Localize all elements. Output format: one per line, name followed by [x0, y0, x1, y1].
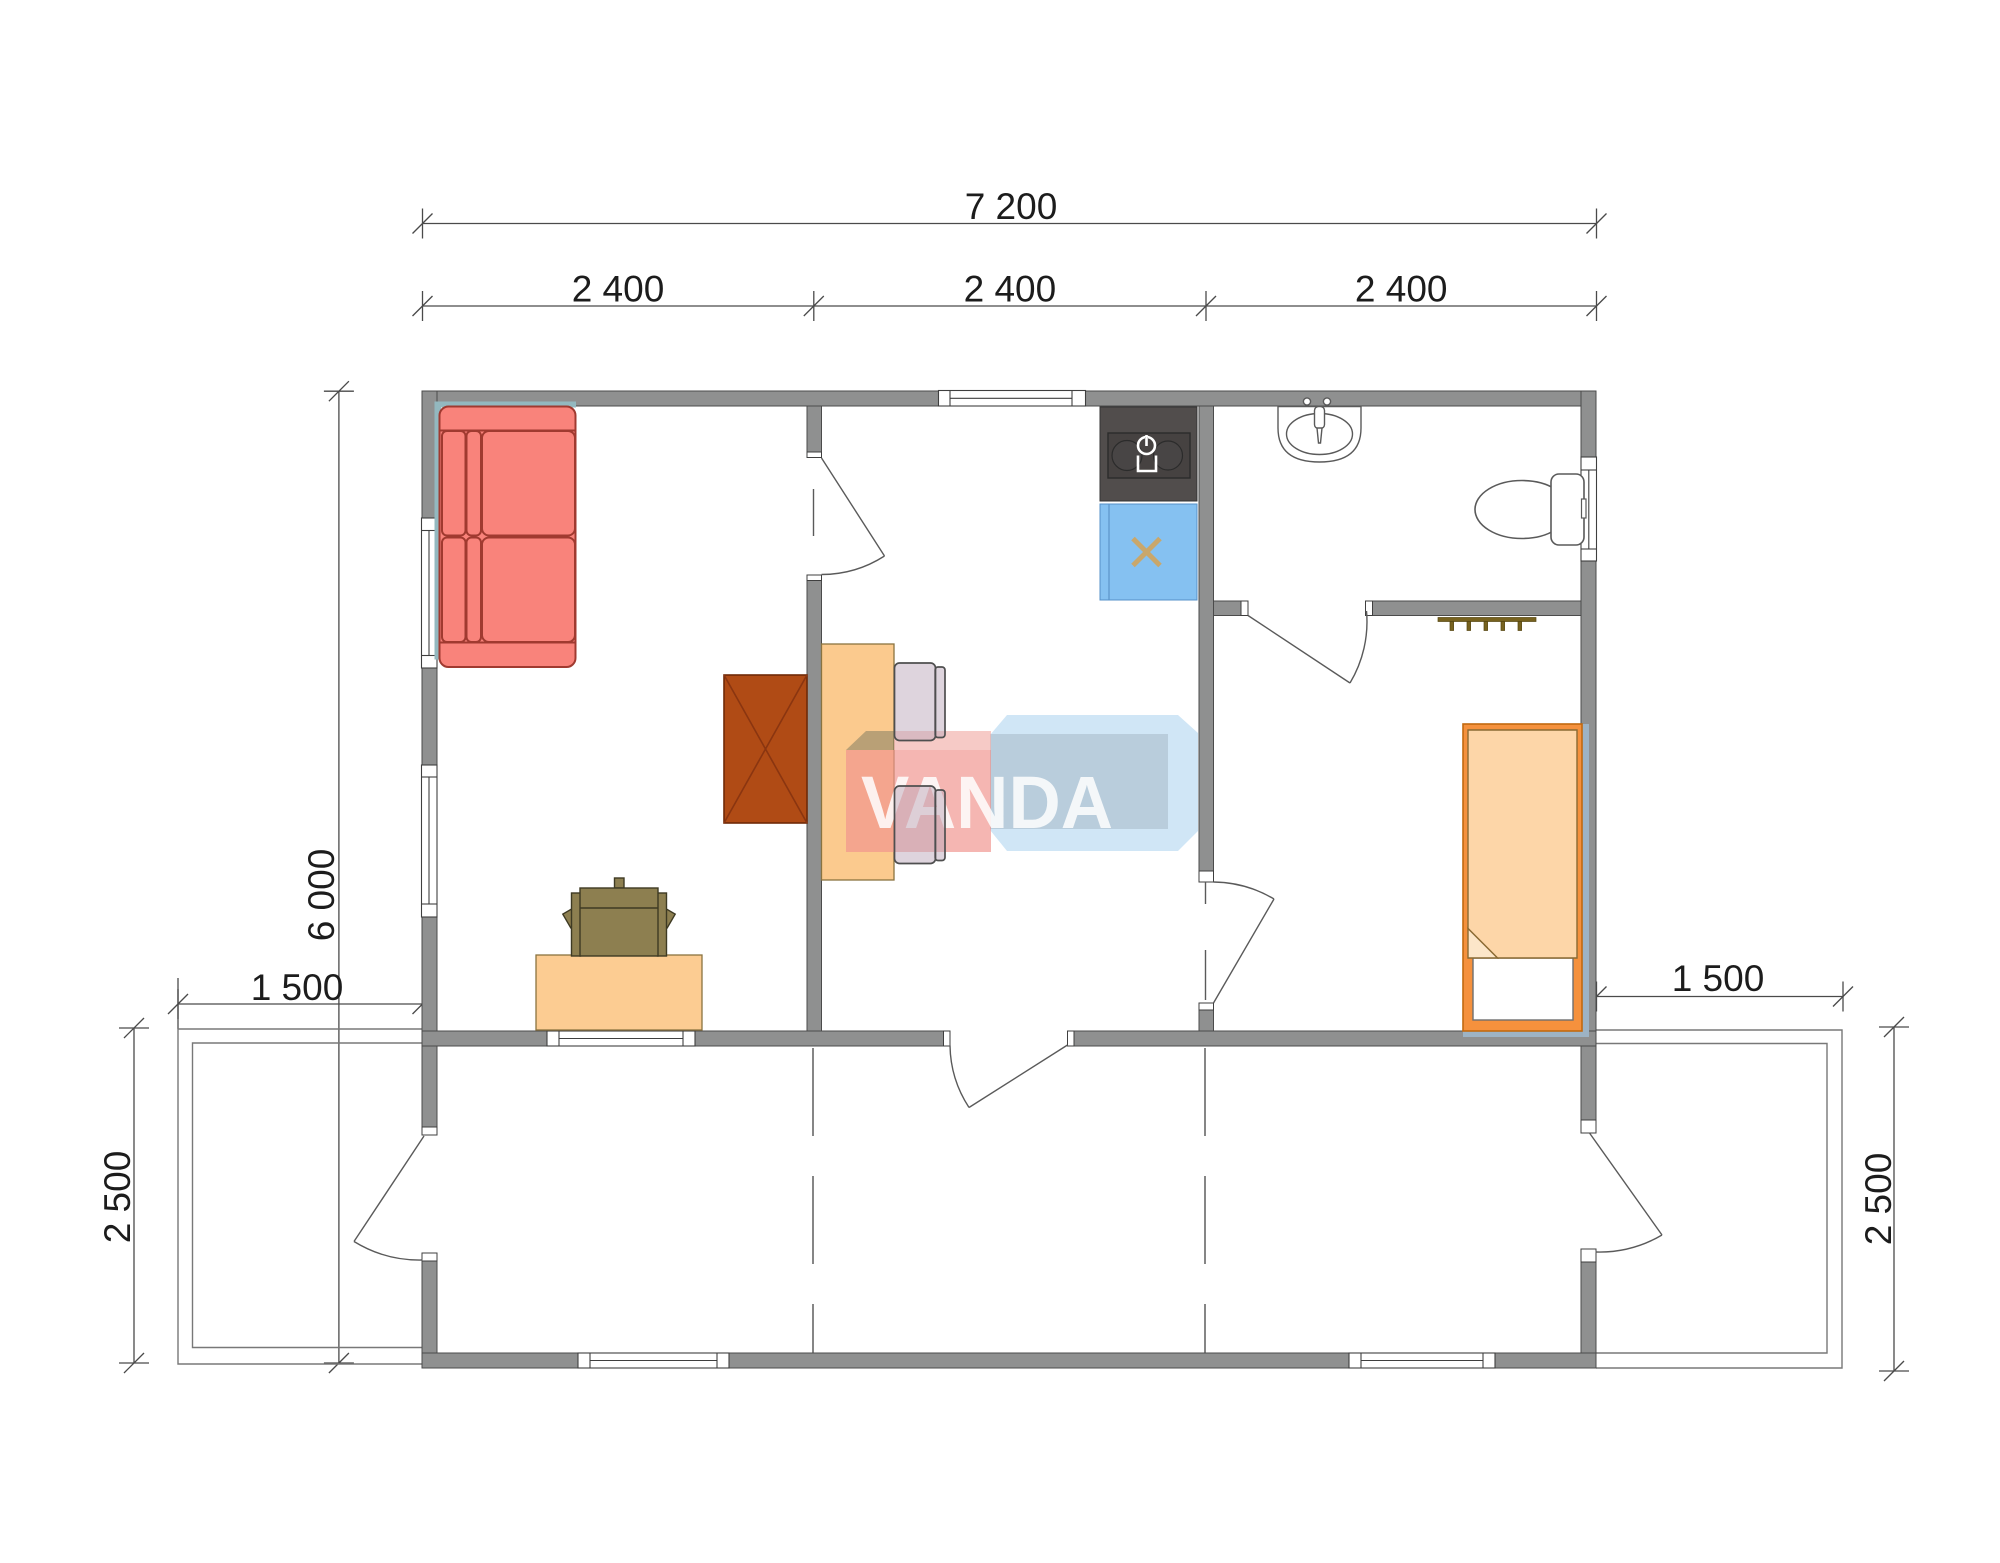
- svg-text:1 500: 1 500: [1672, 958, 1765, 999]
- svg-text:2 400: 2 400: [1355, 269, 1448, 310]
- svg-text:7 200: 7 200: [965, 186, 1058, 227]
- svg-text:2 400: 2 400: [964, 269, 1057, 310]
- svg-text:2 400: 2 400: [572, 269, 665, 310]
- svg-text:2 500: 2 500: [97, 1151, 138, 1244]
- svg-text:6 000: 6 000: [301, 849, 342, 942]
- svg-text:1 500: 1 500: [251, 967, 344, 1008]
- svg-text:2 500: 2 500: [1858, 1153, 1899, 1246]
